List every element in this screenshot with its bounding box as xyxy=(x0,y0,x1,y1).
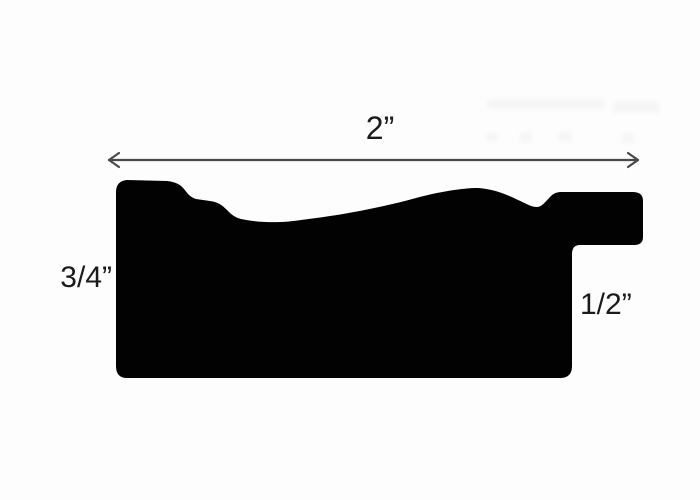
moulding-profile-silhouette xyxy=(116,180,643,378)
rabbet-dimension-label: 1/2” xyxy=(580,290,660,320)
height-dimension-label: 3/4” xyxy=(28,263,112,293)
diagram-canvas: 2” 3/4” 1/2” xyxy=(0,0,700,500)
width-dimension-arrow xyxy=(109,153,638,167)
width-dimension-label: 2” xyxy=(330,112,430,144)
moulding-profile-figure xyxy=(0,0,700,500)
